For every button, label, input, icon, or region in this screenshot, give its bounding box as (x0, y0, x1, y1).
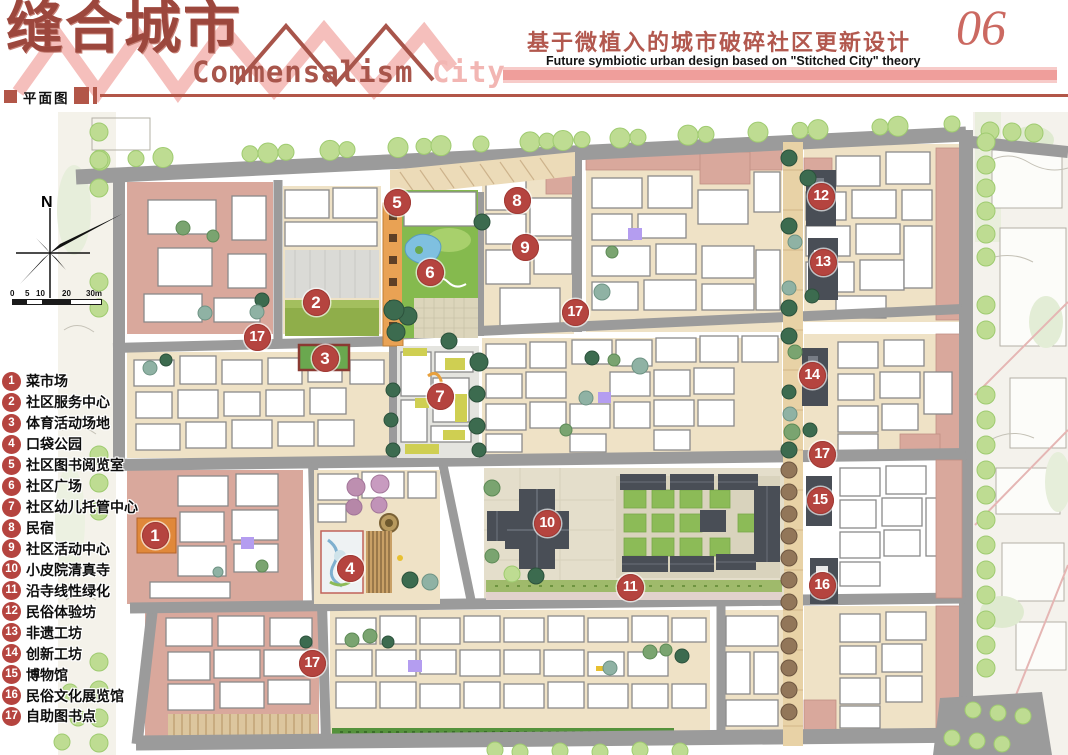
legend-label: 自助图书点 (26, 706, 96, 726)
subtitle-chinese: 基于微植入的城市破碎社区更新设计 (527, 25, 911, 57)
legend-label: 非遗工坊 (26, 623, 82, 643)
legend-item: 1菜市场 (2, 371, 138, 392)
legend-item: 10小皮院清真寺 (2, 559, 138, 580)
main-title-english: Commensalism City (192, 55, 506, 89)
sports-field (299, 345, 349, 370)
legend-label: 民宿 (26, 518, 54, 538)
page-number: 06 (956, 0, 1006, 56)
city-blocks (127, 144, 962, 738)
legend-label: 口袋公园 (26, 434, 82, 454)
section-rule-line (100, 94, 1068, 97)
legend-number-badge: 6 (2, 477, 21, 496)
title-english-word1: Commensalism (192, 55, 432, 89)
block-museum-row (840, 460, 962, 598)
legend-number-badge: 17 (2, 707, 21, 726)
main-title-chinese: 缝合城市 (6, 0, 242, 57)
legend-label: 社区幼儿托管中心 (26, 497, 138, 517)
block-hutong-central (482, 336, 782, 456)
legend-number-badge: 10 (2, 560, 21, 579)
legend-item: 14创新工坊 (2, 643, 138, 664)
subtitle-english: Future symbiotic urban design based on "… (546, 54, 920, 68)
legend-item: 9社区活动中心 (2, 539, 138, 560)
legend-item: 16民俗文化展览馆 (2, 685, 138, 706)
section-label: 平面图 (23, 87, 70, 107)
legend-label: 创新工坊 (26, 644, 82, 664)
legend-number-badge: 5 (2, 456, 21, 475)
scale-tick-label: 0 (10, 289, 14, 298)
legend-label: 菜市场 (26, 371, 68, 391)
legend: 1菜市场2社区服务中心3体育活动场地4口袋公园5社区图书阅览室6社区广场7社区幼… (2, 371, 138, 727)
pocket-park (314, 470, 440, 604)
title-english-word2: City (432, 55, 506, 89)
legend-label: 民俗体验坊 (26, 602, 96, 622)
legend-item: 13非遗工坊 (2, 622, 138, 643)
legend-item: 15博物馆 (2, 664, 138, 685)
legend-number-badge: 15 (2, 665, 21, 684)
legend-label: 社区活动中心 (26, 539, 110, 559)
legend-label: 社区服务中心 (26, 392, 110, 412)
legend-label: 沿寺线性绿化 (26, 581, 110, 601)
scale-tick-label: 10 (36, 289, 45, 298)
legend-item: 3体育活动场地 (2, 413, 138, 434)
legend-number-badge: 9 (2, 539, 21, 558)
marketplace-building (137, 518, 176, 553)
site-plan-map (0, 0, 1068, 755)
legend-item: 7社区幼儿托管中心 (2, 497, 138, 518)
legend-number-badge: 2 (2, 393, 21, 412)
legend-label: 社区图书阅览室 (26, 455, 124, 475)
scale-segment (13, 300, 27, 304)
scale-tick-label: 20 (62, 289, 71, 298)
legend-item: 11沿寺线性绿化 (2, 580, 138, 601)
legend-number-badge: 3 (2, 414, 21, 433)
section-bar2-icon (93, 87, 97, 104)
legend-number-badge: 16 (2, 686, 21, 705)
block-s-small (724, 610, 784, 732)
scale-segment (27, 300, 42, 304)
legend-label: 博物馆 (26, 665, 68, 685)
legend-item: 4口袋公园 (2, 434, 138, 455)
scale-segment (71, 300, 101, 304)
legend-label: 社区广场 (26, 476, 82, 496)
pink-rule-bar (503, 67, 1057, 83)
legend-label: 体育活动场地 (26, 413, 110, 433)
scale-bar: 05102030m (10, 289, 110, 307)
legend-item: 6社区广场 (2, 476, 138, 497)
north-label: N (41, 194, 53, 212)
legend-item: 5社区图书阅览室 (2, 455, 138, 476)
scale-bar-segments (12, 299, 102, 305)
legend-label: 小皮院清真寺 (26, 560, 110, 580)
legend-number-badge: 11 (2, 581, 21, 600)
legend-number-badge: 13 (2, 623, 21, 642)
section-square-icon (4, 90, 17, 103)
scale-tick-label: 30m (86, 289, 102, 298)
legend-number-badge: 4 (2, 435, 21, 454)
section-bar-icon (74, 87, 89, 104)
legend-item: 2社区服务中心 (2, 392, 138, 413)
legend-item: 8民宿 (2, 518, 138, 539)
legend-number-badge: 1 (2, 372, 21, 391)
legend-number-badge: 14 (2, 644, 21, 663)
block-sw-courtyards (145, 610, 319, 738)
legend-item: 17自助图书点 (2, 706, 138, 727)
presentation-board: 缝合城市 Commensalism City 基于微植入的城市破碎社区更新设计 … (0, 0, 1068, 755)
legend-label: 民俗文化展览馆 (26, 686, 124, 706)
scale-segment (42, 300, 71, 304)
legend-number-badge: 12 (2, 602, 21, 621)
block-community-service (283, 186, 381, 336)
block-s-hutong (330, 610, 710, 738)
legend-item: 12民俗体验坊 (2, 601, 138, 622)
block-north-central (586, 150, 782, 332)
kindergarten (397, 346, 479, 458)
legend-number-badge: 8 (2, 519, 21, 538)
scale-tick-label: 5 (25, 289, 29, 298)
legend-number-badge: 7 (2, 498, 21, 517)
